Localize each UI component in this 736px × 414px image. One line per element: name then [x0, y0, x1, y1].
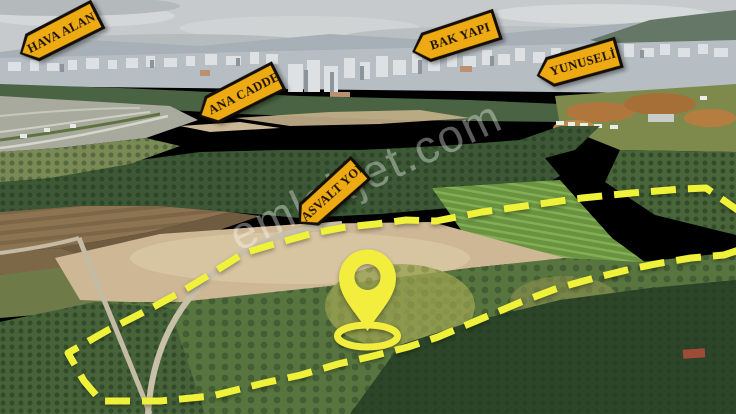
location-pin-icon [339, 250, 396, 332]
parcel-boundary-line [68, 188, 736, 401]
listing-photo: emlakjet.com HAVA ALANI ANA CADDE BAK YA… [0, 0, 736, 414]
parcel-overlay [0, 0, 736, 414]
